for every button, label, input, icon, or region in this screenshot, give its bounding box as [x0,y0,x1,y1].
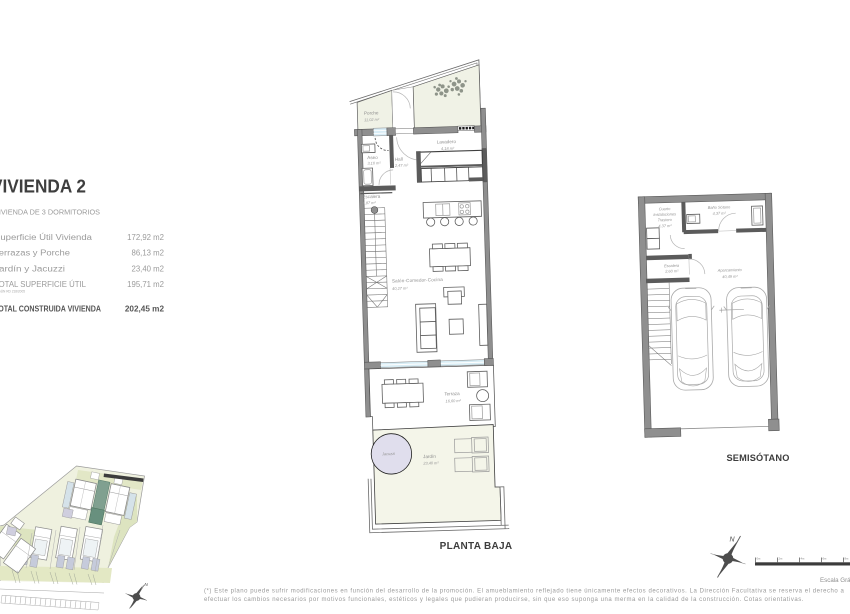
svg-text:172,92 m2: 172,92 m2 [127,233,164,242]
svg-text:Jardín: Jardín [423,454,436,459]
svg-text:3,10 m²: 3,10 m² [367,160,381,165]
svg-text:Escalera: Escalera [362,194,380,200]
svg-text:Hall: Hall [395,157,403,162]
svg-text:23,40 m²: 23,40 m² [422,460,439,466]
svg-text:Salón-Comedor-Cocina: Salón-Comedor-Cocina [392,277,443,284]
svg-text:VIVIENDA DE 3 DORMITORIOS: VIVIENDA DE 3 DORMITORIOS [0,208,100,217]
svg-text:6m: 6m [823,557,828,561]
svg-text:0m: 0m [757,557,762,561]
svg-text:2m: 2m [779,557,784,561]
svg-text:VIVIENDA 2: VIVIENDA 2 [0,176,86,197]
svg-text:SEGÚN RD 218/2005: SEGÚN RD 218/2005 [0,288,25,293]
svg-text:2,47 m²: 2,47 m² [394,162,409,167]
svg-text:Superficie Útil Vivienda: Superficie Útil Vivienda [0,233,93,242]
svg-text:4,87 m²: 4,87 m² [362,200,376,205]
svg-text:8m: 8m [845,557,850,561]
svg-text:N: N [145,582,149,587]
svg-text:N: N [730,537,736,544]
svg-text:4m: 4m [801,557,806,561]
svg-text:Aparcamiento: Aparcamiento [717,267,743,273]
svg-text:Jardín y Jacuzzi: Jardín y Jacuzzi [0,264,65,273]
svg-text:Escala Gráfica: Escala Gráfica [820,577,850,584]
svg-text:4,37 m²: 4,37 m² [658,223,672,228]
svg-text:2,60 m²: 2,60 m² [664,268,679,273]
svg-text:4,18 m²: 4,18 m² [441,146,455,151]
svg-text:86,13 m2: 86,13 m2 [131,249,164,258]
svg-text:Aseo: Aseo [367,155,378,160]
svg-text:Lavadero: Lavadero [437,139,457,145]
svg-text:Trastero: Trastero [658,217,673,222]
svg-text:Porche: Porche [364,110,379,115]
svg-text:(*) Este plano puede sufrir mo: (*) Este plano puede sufrir modificacion… [204,589,845,595]
svg-text:23,40 m2: 23,40 m2 [131,264,164,273]
svg-text:40,27 m²: 40,27 m² [392,286,408,291]
svg-text:4,37 m²: 4,37 m² [712,210,726,215]
svg-text:Cuarto: Cuarto [659,206,672,211]
svg-text:Jacuzzi: Jacuzzi [381,451,395,456]
svg-text:Terrazas y Porche: Terrazas y Porche [0,249,70,258]
svg-text:11,02 m²: 11,02 m² [364,117,380,122]
svg-text:16,60 m²: 16,60 m² [445,398,461,403]
svg-text:Terraza: Terraza [444,391,460,396]
svg-text:SEMISÓTANO: SEMISÓTANO [726,452,789,463]
svg-text:195,71 m2: 195,71 m2 [127,280,164,289]
svg-text:202,45 m2: 202,45 m2 [125,305,165,314]
svg-text:Instalaciones: Instalaciones [653,211,676,217]
svg-text:TOTAL SUPERFICIE ÚTIL: TOTAL SUPERFICIE ÚTIL [0,280,87,289]
svg-text:TOTAL CONSTRUIDA VIVIENDA: TOTAL CONSTRUIDA VIVIENDA [0,305,101,314]
svg-text:40,49 m²: 40,49 m² [722,274,738,279]
svg-text:efectuar los cambios necesario: efectuar los cambios necesarios por moti… [204,597,804,603]
svg-text:Baño Sótano: Baño Sótano [708,204,731,210]
svg-text:PLANTA BAJA: PLANTA BAJA [440,541,513,552]
